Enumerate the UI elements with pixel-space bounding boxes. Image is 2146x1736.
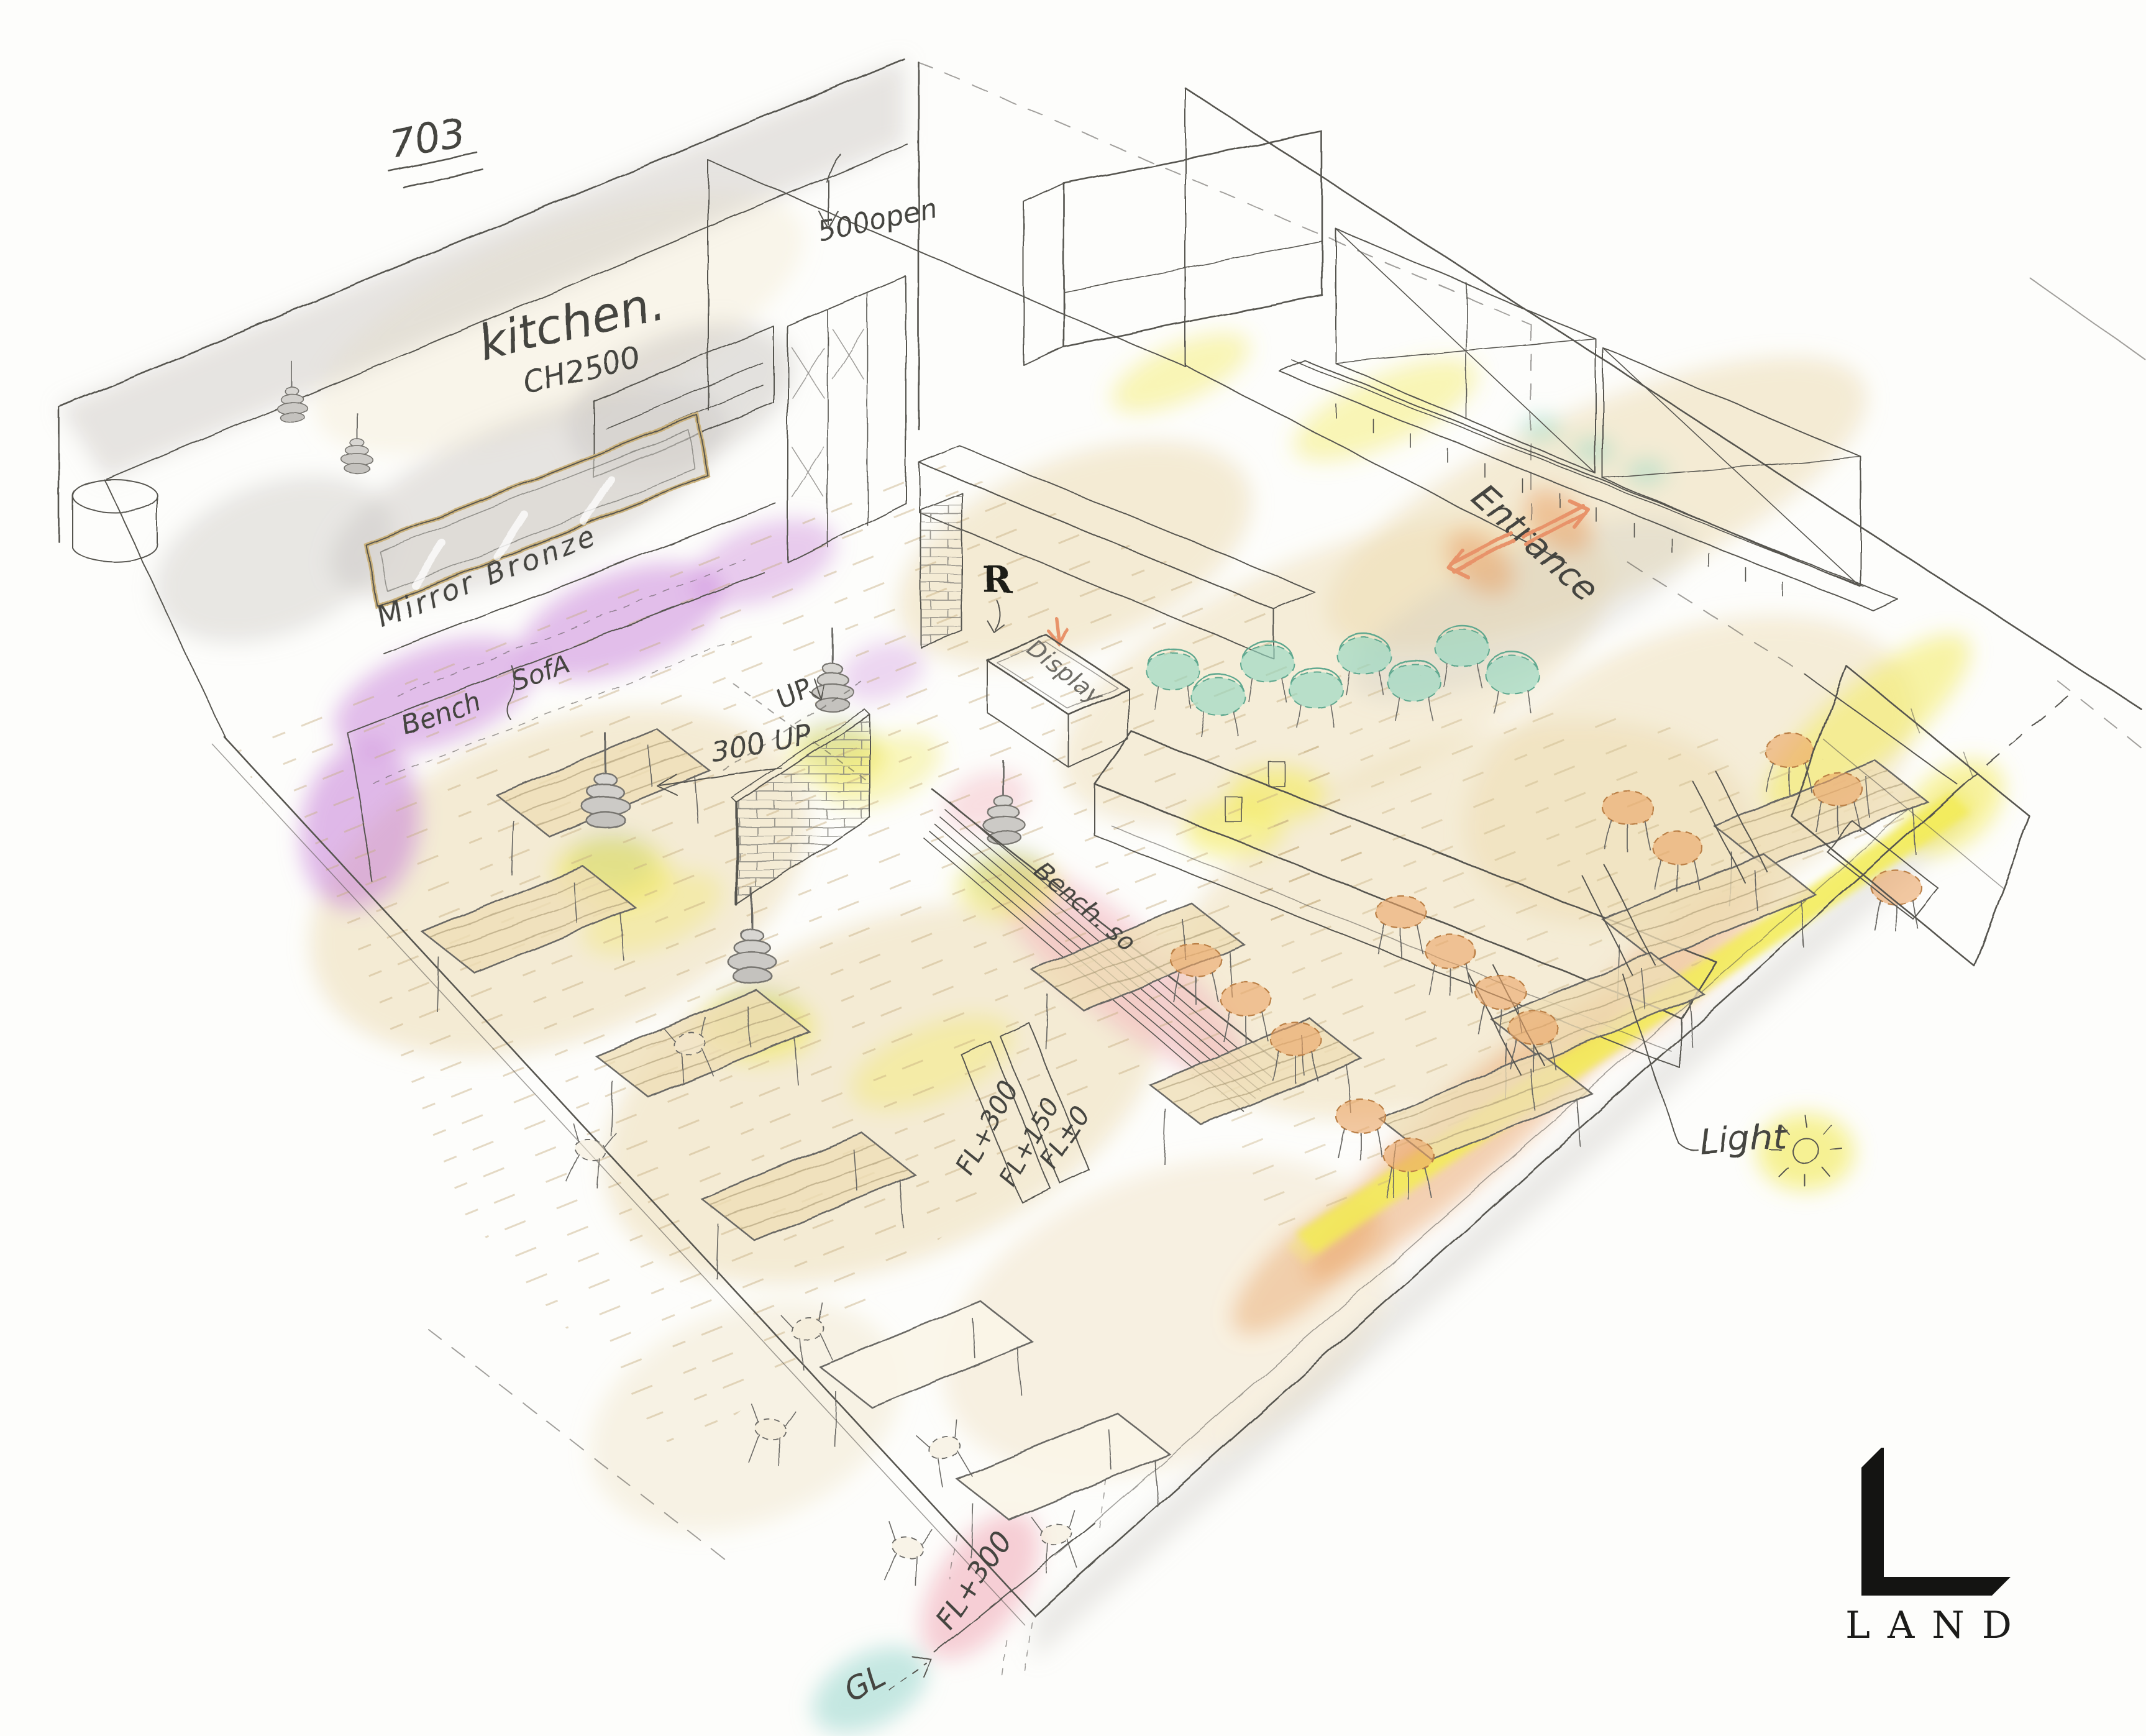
land-logo: LAND: [1845, 1448, 2029, 1647]
room-number: 703: [386, 110, 483, 188]
logo-wordmark: LAND: [1845, 1604, 2029, 1647]
opening-text: 500open: [815, 192, 939, 248]
light-text: Light: [1698, 1116, 1789, 1163]
chair: [877, 1520, 932, 1588]
sketch-page: 703 kitchen. CH2500 500open Mirror Bronz…: [0, 0, 2146, 1736]
register-text: R: [982, 559, 1011, 600]
corner-column: [73, 480, 158, 562]
logo-l-mark: [1861, 1448, 2011, 1596]
room-number-text: 703: [386, 110, 469, 168]
